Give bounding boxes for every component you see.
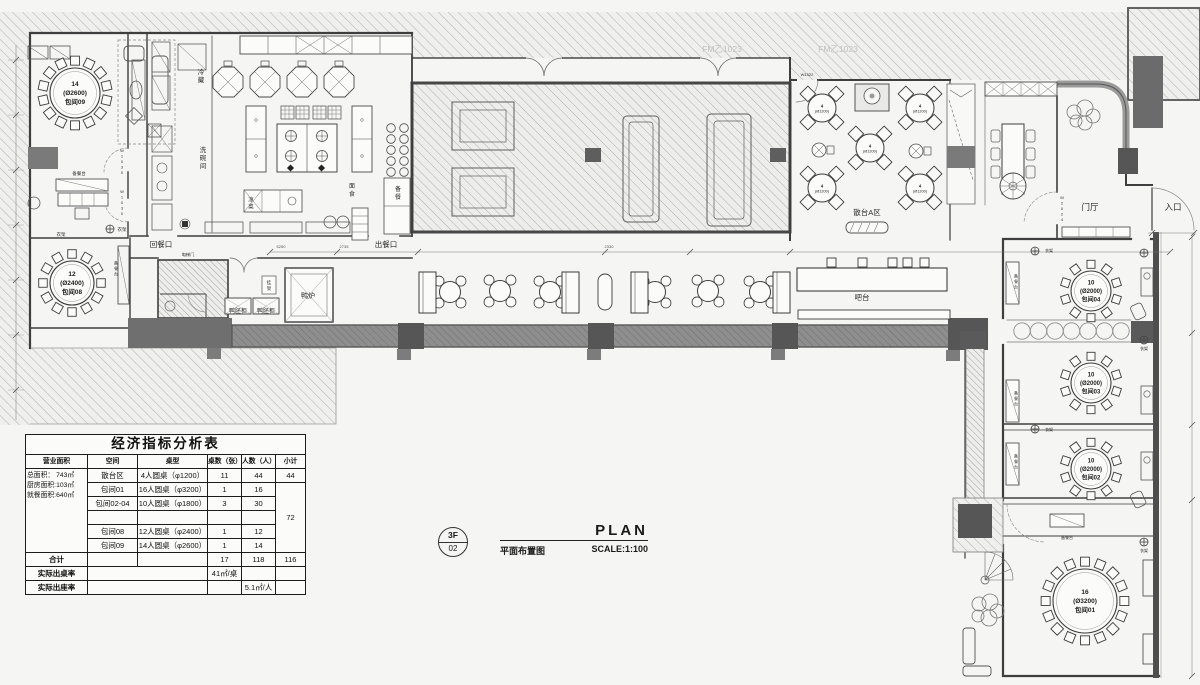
table-rate-value: 41㎡/桌 xyxy=(208,567,242,581)
svg-text:包间09: 包间09 xyxy=(65,97,86,106)
total-subtotal: 116 xyxy=(276,553,306,567)
cell-empty xyxy=(276,581,306,595)
cell-empty xyxy=(242,567,276,581)
rack-box xyxy=(262,276,276,294)
label-coat-rack-08: 衣架 xyxy=(57,231,66,238)
total-count: 17 xyxy=(208,553,242,567)
label-fire-door-tag-1: FM乙1023 xyxy=(702,44,742,54)
round-table-baojian02: 10(Ø2000)包间02 xyxy=(1061,438,1122,499)
col-header: 小计 xyxy=(276,455,306,469)
coat-hook-symbol xyxy=(1140,336,1148,344)
svg-text:(Ø1200): (Ø1200) xyxy=(863,150,878,154)
label-coat-rack-01: 衣架 xyxy=(1140,547,1148,553)
cell-space: 散台区 xyxy=(88,469,138,483)
corridor-table-1 xyxy=(434,276,466,308)
cell-count: 3 xyxy=(208,497,242,511)
elevator-shaft xyxy=(158,260,228,318)
cell-people: 44 xyxy=(242,469,276,483)
label-coat-rack-09: 衣架 xyxy=(118,226,127,233)
label-coat-rack-04: 衣架 xyxy=(1045,247,1053,253)
cell-type: 4人圆桌（φ1200） xyxy=(138,469,208,483)
screen-circle xyxy=(1096,323,1112,339)
svg-text:(Ø1200): (Ø1200) xyxy=(913,110,928,114)
cell-people: 30 xyxy=(242,497,276,511)
cell-space: 包间09 xyxy=(88,539,138,553)
label-door-tag-m2024: M2024 xyxy=(1060,195,1064,222)
svg-text:(Ø2000): (Ø2000) xyxy=(1080,289,1102,295)
booth-1 xyxy=(419,272,436,313)
right-outer-wall xyxy=(1153,232,1161,678)
escalator xyxy=(947,84,975,204)
cell-type: 16人圆桌（φ3200） xyxy=(138,483,208,497)
coat-hook-symbol xyxy=(106,225,114,233)
title-text: PLAN 平面布置图 SCALE:1:100 xyxy=(500,522,648,557)
cell-type xyxy=(138,511,208,525)
wok-station xyxy=(250,61,280,97)
steamer-pot xyxy=(400,146,409,155)
svg-text:(Ø2000): (Ø2000) xyxy=(1080,467,1102,473)
double-door-arcs xyxy=(526,58,736,76)
booth-2 xyxy=(562,272,579,313)
cell-count: 1 xyxy=(208,539,242,553)
door-swing-m2024 xyxy=(1024,192,1057,222)
bar-counter-shape xyxy=(797,268,947,291)
label-door-tag-w1030-1: W1030 xyxy=(120,148,124,175)
svg-text:包间03: 包间03 xyxy=(1082,388,1101,396)
svg-text:10: 10 xyxy=(1088,373,1095,379)
col-header: 人数（人） xyxy=(242,455,276,469)
cell-empty xyxy=(138,553,208,567)
bar-stool-2 xyxy=(858,258,867,267)
svg-text:(Ø2400): (Ø2400) xyxy=(60,280,84,287)
bar-stool-1 xyxy=(827,258,836,267)
round-table-baojian01: 16(Ø3200)包间01 xyxy=(1041,557,1129,645)
svg-text:10: 10 xyxy=(1088,281,1095,287)
screen-circle xyxy=(1063,323,1079,339)
wok-station xyxy=(287,61,317,97)
cell-people: 14 xyxy=(242,539,276,553)
corridor-table-6 xyxy=(744,276,776,308)
svg-text:12: 12 xyxy=(68,271,76,278)
corridor-table-2 xyxy=(484,275,516,307)
column xyxy=(960,331,986,349)
col-header: 空间 xyxy=(88,455,138,469)
cell-space: 包间01 xyxy=(88,483,138,497)
label-door-tag-w1522: W1522 xyxy=(801,72,814,77)
cell-subtotal: 44 xyxy=(276,469,306,483)
svg-text:包间02: 包间02 xyxy=(1082,474,1101,482)
coat-hook-symbol xyxy=(1031,247,1039,255)
cell-empty xyxy=(208,581,242,595)
round-table-baojian03: 10(Ø2000)包间03 xyxy=(1061,352,1122,413)
cell-count: 1 xyxy=(208,525,242,539)
label-elevator-door: 电梯门 xyxy=(182,251,195,258)
col-header: 桌型 xyxy=(138,455,208,469)
coat-hook-symbol xyxy=(1140,538,1148,546)
screen-circle xyxy=(1030,323,1046,339)
svg-text:(Ø1200): (Ø1200) xyxy=(815,110,830,114)
scatter-table-4: 4(Ø1200) xyxy=(800,166,844,210)
title-block: 3F 02 PLAN 平面布置图 SCALE:1:100 xyxy=(438,522,648,557)
total-label: 合计 xyxy=(26,553,88,567)
svg-text:10: 10 xyxy=(1088,459,1095,465)
total-people: 118 xyxy=(242,553,276,567)
scatter-table-3: 4(Ø1200) xyxy=(848,126,892,170)
corridor-table-3 xyxy=(534,276,566,308)
bar-area xyxy=(797,268,950,319)
round-table-baojian08: 12(Ø2400)包间08 xyxy=(39,250,106,317)
steamer-pot xyxy=(387,124,396,133)
label-scatter-area-a: 散台A区 xyxy=(853,207,881,217)
cell-count xyxy=(208,511,242,525)
seat-rate-value: 5.1㎡/人 xyxy=(242,581,276,595)
svg-text:包间08: 包间08 xyxy=(62,287,83,296)
label-prep-station: 备餐 xyxy=(395,185,401,201)
plant-cloud-room01 xyxy=(972,594,1004,626)
cell-space: 包间08 xyxy=(88,525,138,539)
svg-text:(Ø2600): (Ø2600) xyxy=(63,90,87,97)
label-dim-2735: 2735 xyxy=(340,244,350,249)
scatter-table-1: 4(Ø1200) xyxy=(800,86,844,130)
label-prep-counter-01: 备餐台 xyxy=(1061,534,1073,540)
svg-text:包间04: 包间04 xyxy=(1082,296,1101,304)
cell-type: 10人圆桌（φ1800） xyxy=(138,497,208,511)
foyer-plant xyxy=(1067,100,1100,130)
column xyxy=(398,323,424,349)
sheet-number: 02 xyxy=(449,543,458,555)
area-summary: 总面积： 743㎡ 厨房面积:103㎡ 就餐面积:640㎡ xyxy=(26,469,88,553)
cell-space: 包间02-04 xyxy=(88,497,138,511)
label-prep-counter-04: 备餐台 xyxy=(1014,272,1018,289)
cell-type: 12人圆桌（φ2400） xyxy=(138,525,208,539)
wok-station xyxy=(213,61,243,97)
cell-empty xyxy=(88,553,138,567)
label-hanging-rack: 挂架 xyxy=(267,279,272,292)
screen-circle xyxy=(1080,323,1096,339)
capsule-table xyxy=(598,274,612,310)
steamer-pot xyxy=(387,135,396,144)
screen-circle xyxy=(1014,323,1030,339)
label-dim-5250: 5250 xyxy=(277,244,287,249)
svg-text:(Ø1200): (Ø1200) xyxy=(815,190,830,194)
label-cold-dish: 凉菜 xyxy=(248,195,254,210)
cell-empty xyxy=(88,581,208,595)
label-prep-counter-03: 备餐台 xyxy=(1014,389,1018,406)
label-return-opening: 回餐口 xyxy=(150,240,173,249)
screen-circle xyxy=(1113,323,1129,339)
plan-title-cn: 平面布置图 xyxy=(500,544,545,557)
bar-stool-3 xyxy=(888,258,897,267)
label-prep-counter-02: 备餐台 xyxy=(1014,452,1018,469)
dining-area: 就餐面积:640㎡ xyxy=(27,491,86,501)
label-bar-counter: 吧台 xyxy=(855,292,870,302)
cell-empty xyxy=(276,567,306,581)
escalator-tea-area xyxy=(947,82,1057,204)
kitchen-area: 厨房面积:103㎡ xyxy=(27,481,86,491)
booth-4 xyxy=(773,272,790,313)
bar-stool-5 xyxy=(920,258,929,267)
back-bar-shelf xyxy=(798,310,950,319)
label-prep-counter-09: 备餐台 xyxy=(72,170,86,177)
cell-people: 12 xyxy=(242,525,276,539)
steamer-pot xyxy=(400,168,409,177)
svg-text:包间01: 包间01 xyxy=(1075,605,1096,614)
seat-rate-label: 实际出座率 xyxy=(26,581,88,595)
column xyxy=(772,323,798,349)
steamer-pot xyxy=(387,146,396,155)
label-prep-counter-08: 备餐台 xyxy=(114,259,118,276)
column xyxy=(588,323,614,349)
cell-space xyxy=(88,511,138,525)
tv-cabinet xyxy=(28,147,58,169)
label-foyer: 门厅 xyxy=(1081,202,1099,212)
label-duck-cabinet-2: 鸭胚柜 xyxy=(257,307,275,315)
room09-furniture xyxy=(28,40,175,304)
bar-stool-4 xyxy=(903,258,912,267)
booth-3 xyxy=(631,272,648,313)
column xyxy=(770,148,786,162)
label-serve-opening: 出餐口 xyxy=(375,239,398,249)
void-block xyxy=(412,58,790,232)
corridor-table-5 xyxy=(692,275,724,307)
col-header: 桌数（张） xyxy=(208,455,242,469)
round-table-baojian04: 10(Ø2000)包间04 xyxy=(1061,260,1122,321)
double-door-niche xyxy=(230,258,258,272)
steamer-pot xyxy=(400,157,409,166)
cell-people: 16 xyxy=(242,483,276,497)
label-duck-cabinet-1: 鸭胚柜 xyxy=(229,307,247,315)
fan-steps xyxy=(985,552,1013,580)
cell-people xyxy=(242,511,276,525)
floor-plan-sheet: 14(Ø2600)包间0912(Ø2400)包间0810(Ø2000)包间041… xyxy=(0,0,1200,685)
column xyxy=(1118,148,1138,174)
total-area: 总面积： 743㎡ xyxy=(27,471,86,481)
label-dishwash-room: 洗碗间 xyxy=(200,145,207,170)
column xyxy=(585,148,601,162)
steamer-pot xyxy=(400,124,409,133)
coat-hook-symbol xyxy=(1140,249,1148,257)
svg-text:16: 16 xyxy=(1081,589,1089,596)
steamer-pot xyxy=(387,157,396,166)
table-rate-label: 实际出桌率 xyxy=(26,567,88,581)
cell-empty xyxy=(88,567,208,581)
svg-text:14: 14 xyxy=(71,81,79,88)
label-entrance: 入口 xyxy=(1164,202,1181,212)
column xyxy=(958,504,992,538)
cell-count: 1 xyxy=(208,483,242,497)
cell-type: 14人圆桌（φ2600） xyxy=(138,539,208,553)
label-noodle-station: 面食 xyxy=(349,183,355,198)
plan-scale: SCALE:1:100 xyxy=(591,544,648,557)
svg-text:(Ø3200): (Ø3200) xyxy=(1073,598,1097,605)
steamer-pot xyxy=(387,168,396,177)
svg-text:(Ø1200): (Ø1200) xyxy=(913,190,928,194)
label-coat-rack-corridor: 衣架 xyxy=(1140,345,1148,351)
col-header: 营业面积 xyxy=(26,455,88,469)
label-cold-storage: 冷藏 xyxy=(198,67,205,84)
cell-merged-subtotal: 72 xyxy=(276,483,306,553)
label-fire-door-tag-2: FM乙1023 xyxy=(818,44,858,54)
round-table-baojian09: 14(Ø2600)包间09 xyxy=(38,56,112,130)
sheet-badge: 3F 02 xyxy=(438,527,468,557)
kitchen-equipment xyxy=(152,36,412,240)
plan-title-en: PLAN xyxy=(500,522,648,541)
floor-number: 3F xyxy=(439,528,467,543)
cell-count: 11 xyxy=(208,469,242,483)
label-door-tag-w1030-2: W1030 xyxy=(120,189,124,216)
label-coat-rack-02: 衣架 xyxy=(1045,426,1053,432)
coat-hook-symbol xyxy=(1031,425,1039,433)
screen-circle xyxy=(1047,323,1063,339)
economic-analysis-table: 经济指标分析表 营业面积 空间 桌型 桌数（张） 人数（人） 小计 总面积： 7… xyxy=(25,434,306,595)
svg-text:(Ø2000): (Ø2000) xyxy=(1080,381,1102,387)
label-duck-oven: 鸭炉 xyxy=(301,291,315,300)
analysis-table-title: 经济指标分析表 xyxy=(26,435,306,455)
steamer-pot xyxy=(400,135,409,144)
scatter-table-2: 4(Ø1200) xyxy=(898,86,942,130)
label-dim-2330: 2330 xyxy=(605,244,615,249)
wok-station xyxy=(324,61,354,97)
waiting-bench xyxy=(846,222,888,233)
scatter-table-5: 4(Ø1200) xyxy=(898,166,942,210)
